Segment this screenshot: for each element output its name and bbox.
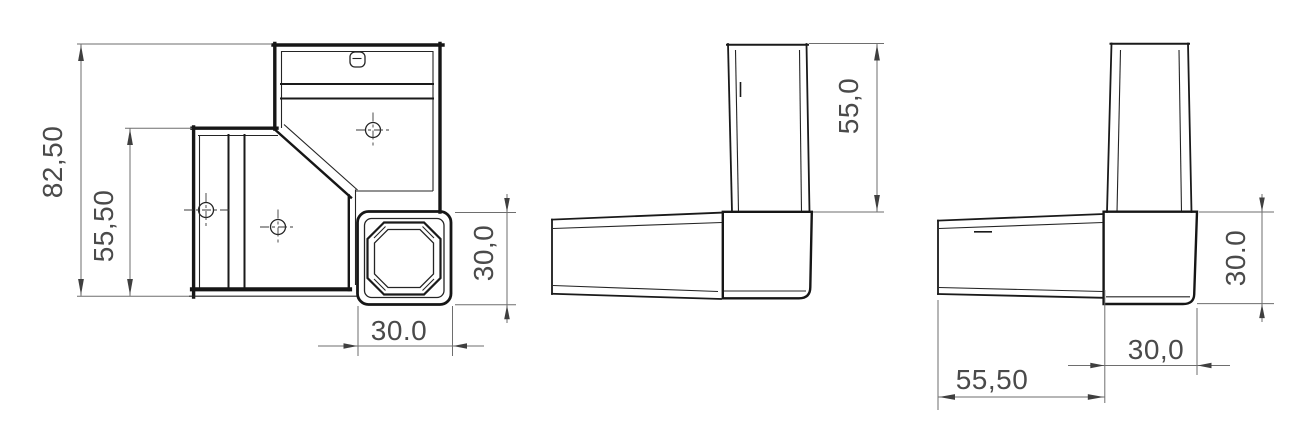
tube-inner-line	[800, 50, 802, 212]
tube-inner-line	[1179, 50, 1182, 212]
drawing-canvas: 82,50 55,50 30.0 30,0	[0, 0, 1316, 446]
arrowhead-right	[344, 343, 358, 349]
dimension-label-socket-height: 30,0	[468, 225, 499, 282]
arrowhead-down	[874, 195, 880, 211]
chamfer-inner-line	[284, 125, 358, 191]
dimension-label-block-height: 30.0	[1220, 230, 1251, 287]
arrowhead-down	[78, 279, 84, 295]
dimension-label-tube-length: 55,50	[956, 364, 1029, 395]
arrowhead-up	[78, 45, 84, 61]
dimension-label-overall-height: 82,50	[37, 126, 68, 199]
arrowhead-down	[127, 279, 133, 295]
side-view: 55,0	[552, 44, 884, 300]
technical-drawing: 82,50 55,50 30.0 30,0	[0, 0, 1316, 446]
tube-edge-top	[552, 213, 722, 220]
tube-edge-right	[1188, 44, 1192, 213]
tube-edge-top	[938, 214, 1103, 221]
arrowhead-right	[1088, 394, 1104, 400]
arrowhead-down	[504, 198, 510, 212]
arrowhead-up	[1259, 304, 1265, 318]
tube-edge-right	[807, 44, 810, 212]
corner-block-outline	[1104, 212, 1197, 304]
chamfer-edge	[276, 131, 351, 198]
dimension-label-arm-height: 55,50	[88, 190, 119, 263]
tube-inner-line	[553, 223, 722, 229]
tube-edge-left	[728, 44, 732, 212]
arrowhead-left	[1198, 363, 1212, 369]
latch-hole	[350, 52, 365, 67]
arrowhead-up	[874, 45, 880, 61]
tube-edge-bottom	[938, 294, 1103, 298]
arrowhead-left	[453, 343, 467, 349]
front-view: 82,50 55,50 30.0 30,0	[37, 44, 516, 357]
arrowhead-down	[1259, 198, 1265, 212]
socket-outer-square	[358, 212, 452, 305]
tube-edge-bottom	[552, 294, 721, 299]
dimension-label-tube-length: 55,0	[833, 78, 864, 135]
tube-inner-line	[553, 286, 718, 292]
dimension-label-socket-width: 30.0	[371, 315, 428, 346]
arrowhead-right	[1090, 363, 1104, 369]
arrowhead-up	[127, 129, 133, 145]
corner-block-outline	[723, 212, 812, 298]
arrowhead-left	[939, 394, 955, 400]
tube-edge-left	[1107, 44, 1112, 213]
back-view: 30.0 55,50 30,0	[938, 44, 1274, 411]
tube-inner-line	[1117, 50, 1121, 212]
tube-inner-line	[736, 50, 739, 212]
arrowhead-up	[504, 305, 510, 319]
socket-octagon-inner	[375, 230, 434, 288]
tube-inner-line	[939, 223, 1103, 229]
tube-inner-line	[939, 288, 1103, 292]
dimension-label-block-width: 30,0	[1128, 334, 1185, 365]
